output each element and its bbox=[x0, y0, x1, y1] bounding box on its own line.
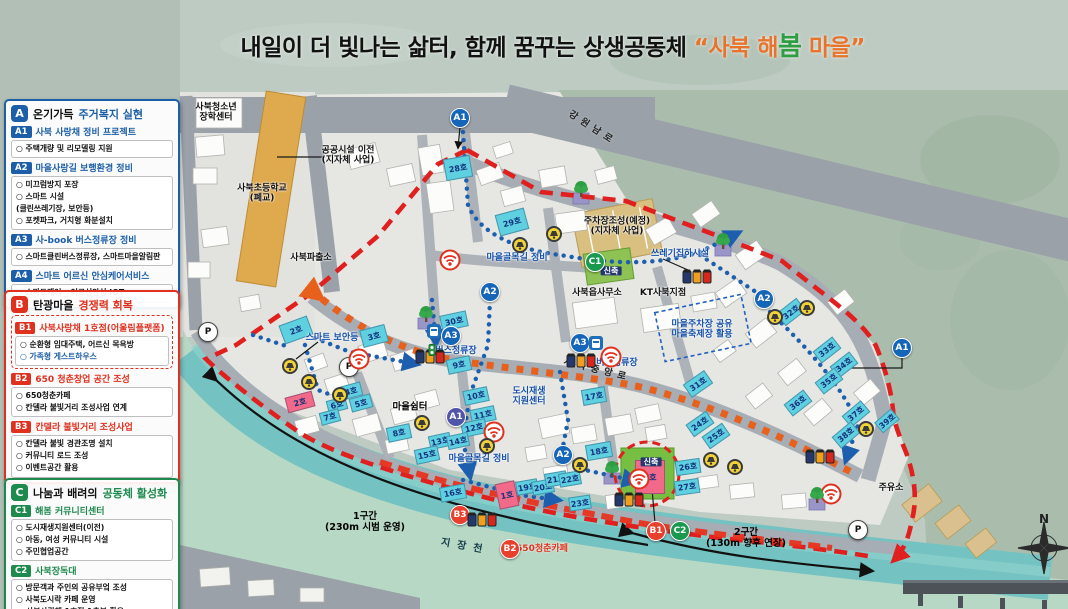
legend-item: ○ 도시재생지원센터(이전) bbox=[16, 522, 168, 534]
trash-bins-icon bbox=[567, 355, 596, 368]
legend-heading: 사-book 버스정류장 정비 bbox=[36, 233, 137, 246]
legend-block-b1: B1사북사랑채 1호점(어울림플랫폼)○ 순환형 임대주택, 어르신 목욕방○ … bbox=[11, 315, 173, 369]
legend-item: ○ 순환형 임대주택, 어르신 목욕방 bbox=[20, 339, 164, 351]
legend-badge-c2: C2 bbox=[11, 565, 31, 577]
legend-item: ○ 주택개량 및 리모델링 지원 bbox=[16, 143, 168, 155]
security-light-icon bbox=[301, 374, 317, 390]
traffic-light-icon bbox=[429, 344, 436, 356]
legend-item: ○ 스마트클린버스정류장, 스마트마을알림판 bbox=[16, 251, 168, 263]
marker-a1: A1 bbox=[450, 108, 470, 128]
marker-a3: A3 bbox=[441, 326, 461, 346]
legend-block-b2: B2650 청춘창업 공간 조성○ 650청춘카페○ 칸델라 불빛거리 조성사업… bbox=[11, 372, 173, 417]
smart-wifi-icon bbox=[629, 469, 650, 490]
title-quote-close: ” bbox=[850, 35, 865, 61]
legend-badge-b3: B3 bbox=[11, 421, 31, 433]
legend-item: ○ 칸델라 불빛 경관조명 설치 bbox=[16, 438, 168, 450]
legend-badge-b2: B2 bbox=[11, 373, 31, 385]
security-light-icon bbox=[546, 226, 562, 242]
legend-block-a2: A2마을사랑길 보행환경 정비○ 미끄럼방지 포장○ 스마트 시설 (클린쓰레기… bbox=[11, 161, 173, 230]
marker-p: P bbox=[848, 520, 868, 540]
security-light-icon bbox=[703, 452, 719, 468]
security-light-icon bbox=[282, 358, 298, 374]
legend-items: ○ 주택개량 및 리모델링 지원 bbox=[11, 140, 173, 158]
legend-badge-b1: B1 bbox=[15, 322, 35, 334]
legend-block-c1: C1해봄 커뮤니티센터○ 도시재생지원센터(이전)○ 아동, 여성 커뮤니티 시… bbox=[11, 504, 173, 561]
trash-bins-icon bbox=[468, 514, 497, 527]
legend-title-plain: 탄광마을 bbox=[33, 297, 73, 313]
legend-item: ○ 주민협업공간 bbox=[16, 546, 168, 558]
tree-icon bbox=[604, 460, 620, 482]
legend-badge-c1: C1 bbox=[11, 505, 31, 517]
security-light-icon bbox=[767, 309, 783, 325]
security-light-icon bbox=[479, 438, 495, 454]
legend-panel-b-header: B탄광마을 경쟁력 회복 bbox=[11, 296, 173, 313]
legend-title-accent: 공동체 활성화 bbox=[103, 485, 168, 501]
trash-bins-icon bbox=[683, 271, 712, 284]
legend-items: ○ 스마트클린버스정류장, 스마트마을알림판 bbox=[11, 248, 173, 266]
legend-item: ○ 방문객과 주인의 공유부엌 조성 bbox=[16, 582, 168, 594]
smart-wifi-icon bbox=[601, 347, 622, 368]
legend-items: ○ 방문객과 주인의 공유부엌 조성○ 사북도시락 카페 운영■ 사북사랑채 1… bbox=[11, 579, 173, 609]
security-light-icon bbox=[858, 421, 874, 437]
bus-stop-icon bbox=[589, 336, 603, 350]
legend-heading: 사북 사랑채 정비 프로젝트 bbox=[36, 125, 136, 138]
marker-p: P bbox=[198, 322, 218, 342]
marker-a2: A2 bbox=[553, 445, 573, 465]
legend-heading: 해봄 커뮤니티센터 bbox=[35, 504, 104, 517]
legend-items: ○ 650청춘카페○ 칸델라 불빛거리 조성사업 연계 bbox=[11, 387, 173, 417]
trash-bins-icon bbox=[806, 451, 835, 464]
legend-title-accent: 주거복지 실현 bbox=[78, 106, 143, 122]
security-light-icon bbox=[572, 457, 588, 473]
legend-item: ○ 스마트 시설 bbox=[16, 191, 168, 203]
bus-stop-icon bbox=[427, 324, 441, 338]
legend-item: ○ 커뮤니티 로드 조성 bbox=[16, 450, 168, 462]
legend-item: ○ 가족형 게스트하우스 bbox=[20, 351, 164, 363]
marker-b1: B1 bbox=[646, 521, 666, 541]
legend-items: ○ 칸델라 불빛 경관조명 설치○ 커뮤니티 로드 조성○ 이벤트공간 활용 bbox=[11, 435, 173, 477]
tree-icon bbox=[809, 486, 825, 508]
security-light-icon bbox=[727, 459, 743, 475]
legend-heading: 650 청춘창업 공간 조성 bbox=[35, 372, 129, 385]
legend-badge-a3: A3 bbox=[11, 234, 32, 246]
legend-panel-c: C나눔과 배려의 공동체 활성화C1해봄 커뮤니티센터○ 도시재생지원센터(이전… bbox=[4, 478, 180, 609]
marker-c2: C2 bbox=[670, 521, 690, 541]
legend-items: ○ 순환형 임대주택, 어르신 목욕방○ 가족형 게스트하우스 bbox=[15, 336, 169, 366]
legend-badge-a2: A2 bbox=[11, 162, 32, 174]
marker-a1: A1 bbox=[446, 407, 466, 427]
legend-block-b3: B3칸델라 불빛거리 조성사업○ 칸델라 불빛 경관조명 설치○ 커뮤니티 로드… bbox=[11, 420, 173, 477]
compass-north-label: N bbox=[1039, 512, 1049, 526]
legend-panel-c-header: C나눔과 배려의 공동체 활성화 bbox=[11, 484, 173, 501]
legend-heading: 칸델라 불빛거리 조성사업 bbox=[35, 420, 132, 433]
smart-wifi-icon bbox=[349, 349, 370, 370]
legend-heading: 사북장독대 bbox=[35, 564, 76, 577]
legend-item: ○ 칸델라 불빛거리 조성사업 연계 bbox=[16, 402, 168, 414]
legend-letter-badge: B bbox=[11, 296, 28, 313]
tree-icon bbox=[715, 232, 731, 254]
legend-panel-a-header: A온기가득 주거복지 실현 bbox=[11, 105, 173, 122]
security-light-icon bbox=[512, 237, 528, 253]
legend-letter-badge: C bbox=[11, 484, 28, 501]
legend-panel-a: A온기가득 주거복지 실현A1사북 사랑채 정비 프로젝트○ 주택개량 및 리모… bbox=[4, 99, 180, 309]
legend-items: ○ 도시재생지원센터(이전)○ 아동, 여성 커뮤니티 시설○ 주민협업공간 bbox=[11, 519, 173, 561]
title-quote-open: “ bbox=[694, 35, 709, 61]
legend-item: ○ 사북도시락 카페 운영 bbox=[16, 594, 168, 606]
legend-badge-a4: A4 bbox=[11, 270, 32, 282]
legend-title-plain: 나눔과 배려의 bbox=[33, 485, 98, 501]
legend-item: ○ 이벤트공간 활용 bbox=[16, 462, 168, 474]
title-village-post: 마을 bbox=[801, 35, 850, 61]
legend-title-plain: 온기가득 bbox=[33, 106, 73, 122]
legend-heading: 스마트 어르신 안심케어서비스 bbox=[36, 269, 150, 282]
security-light-icon bbox=[332, 387, 348, 403]
marker-a2: A2 bbox=[480, 282, 500, 302]
legend-panel-b: B탄광마을 경쟁력 회복B1사북사랑채 1호점(어울림플랫폼)○ 순환형 임대주… bbox=[4, 290, 180, 484]
legend-item: ○ 650청춘카페 bbox=[16, 390, 168, 402]
legend-block-a3: A3사-book 버스정류장 정비○ 스마트클린버스정류장, 스마트마을알림판 bbox=[11, 233, 173, 266]
legend-item: ○ 포켓파크, 거치형 화분설치 bbox=[16, 215, 168, 227]
poster-root: 내일이 더 빛나는 삶터, 함께 꿈꾸는 상생공동체 “사북 해봄 마을” A온… bbox=[0, 0, 1068, 609]
legend-item: (클린쓰레기장, 보안등) bbox=[16, 203, 168, 215]
title-village-pre: 사북 해 bbox=[709, 35, 779, 61]
legend-block-a1: A1사북 사랑채 정비 프로젝트○ 주택개량 및 리모델링 지원 bbox=[11, 125, 173, 158]
legend-badge-a1: A1 bbox=[11, 126, 32, 138]
marker-c1: C1 bbox=[585, 252, 605, 272]
legend-heading: 마을사랑길 보행환경 정비 bbox=[36, 161, 133, 174]
trash-bins-icon bbox=[615, 494, 644, 507]
marker-a3: A3 bbox=[570, 333, 590, 353]
legend-heading: 사북사랑채 1호점(어울림플랫폼) bbox=[39, 321, 164, 334]
smart-wifi-icon bbox=[440, 250, 461, 271]
page-title: 내일이 더 빛나는 삶터, 함께 꿈꾸는 상생공동체 “사북 해봄 마을” bbox=[241, 26, 865, 63]
legend-item: ○ 아동, 여성 커뮤니티 시설 bbox=[16, 534, 168, 546]
title-main: 내일이 더 빛나는 삶터, 함께 꿈꾸는 상생공동체 bbox=[241, 35, 694, 61]
legend-items: ○ 미끄럼방지 포장○ 스마트 시설 (클린쓰레기장, 보안등)○ 포켓파크, … bbox=[11, 176, 173, 230]
legend-letter-badge: A bbox=[11, 105, 28, 122]
security-light-icon bbox=[799, 300, 815, 316]
marker-b2: B2 bbox=[500, 539, 520, 559]
numbered-building: 28호 bbox=[443, 155, 473, 181]
tree-icon bbox=[573, 180, 589, 202]
security-light-icon bbox=[414, 415, 430, 431]
title-village-bom: 봄 bbox=[778, 32, 801, 62]
marker-a2: A2 bbox=[754, 289, 774, 309]
marker-a1: A1 bbox=[892, 338, 912, 358]
legend-block-c2: C2사북장독대○ 방문객과 주인의 공유부엌 조성○ 사북도시락 카페 운영■ … bbox=[11, 564, 173, 609]
legend-item: ○ 미끄럼방지 포장 bbox=[16, 179, 168, 191]
legend-title-accent: 경쟁력 회복 bbox=[78, 297, 132, 313]
